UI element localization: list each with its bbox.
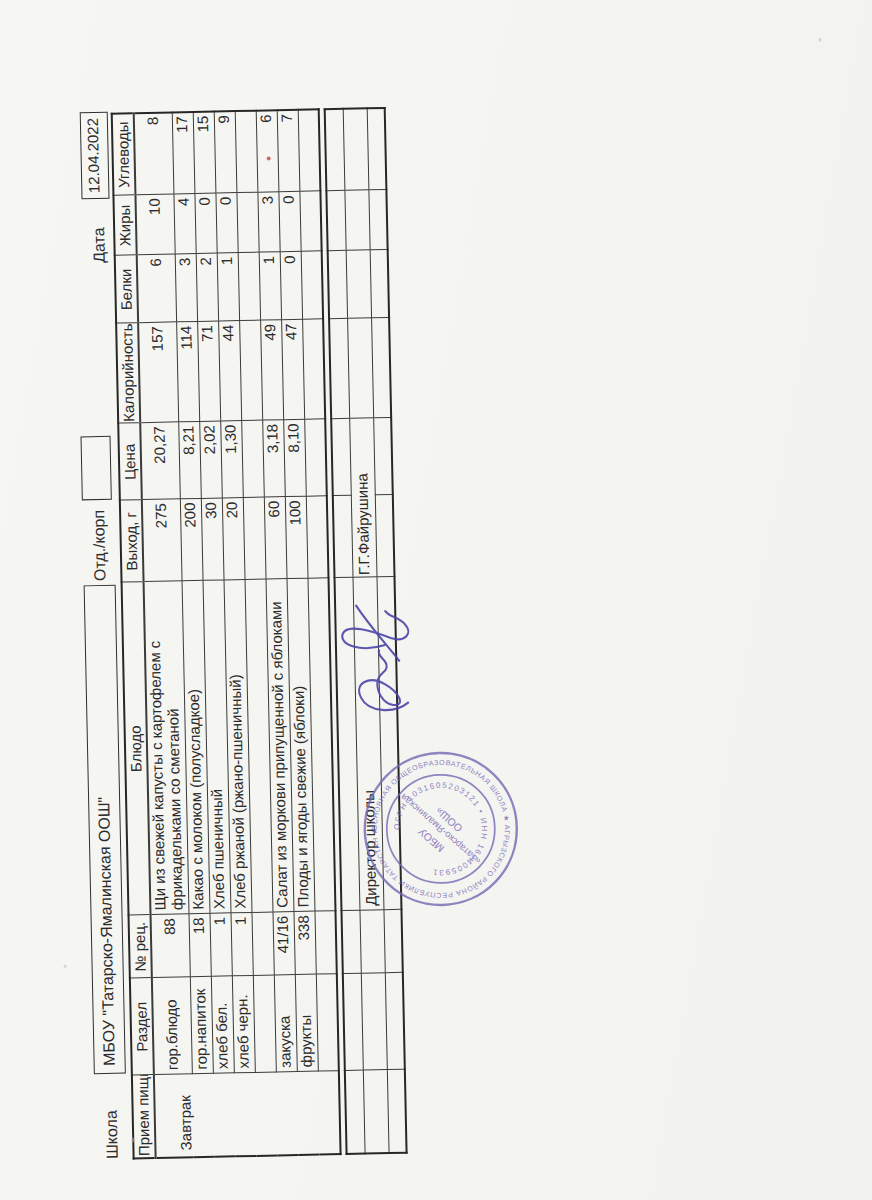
date-value: 12.04.2022 (81, 113, 107, 198)
red-ink-speck (267, 156, 271, 160)
cell-section: хлеб бел. (211, 976, 234, 1073)
cell-protein: 2 (196, 254, 218, 322)
signature-stroke (342, 611, 409, 649)
cell-protein: 1 (217, 253, 239, 321)
cell-carbs: 7 (277, 110, 300, 192)
signature-stroke (356, 605, 399, 662)
col-header-fat: Жиры (113, 195, 136, 255)
cell-rec: 1 (231, 913, 253, 976)
director-name: Г.Г.Файрушина (349, 418, 376, 577)
dept-value-box (80, 436, 111, 501)
cell-protein: 0 (280, 252, 302, 320)
cell-fat: 0 (278, 192, 300, 252)
cell-output: 275 (142, 499, 182, 582)
document-content: Школа МБОУ "Татарско-Ямалинская ООШ" Отд… (0, 0, 872, 1200)
cell-price: 8,10 (283, 420, 306, 497)
cell-carbs: 6 (256, 110, 279, 192)
cell-carbs: 17 (172, 112, 195, 194)
col-header-output: Выход, г (120, 500, 144, 582)
cell-output: 60 (264, 497, 287, 579)
col-header-price: Цена (118, 423, 142, 500)
round-stamp: ОСНОВНАЯ ОБЩЕОБРАЗОВАТЕЛЬНАЯ ШКОЛА ★ АГР… (356, 744, 525, 913)
col-header-protein: Белки (115, 255, 138, 323)
cell-price: 1,30 (220, 421, 243, 498)
cell-price: 3,18 (262, 420, 285, 497)
cell-rec: 88 (151, 914, 190, 978)
scan-speck (64, 965, 67, 968)
date-label: Дата (90, 227, 109, 263)
cell-fat: 0 (194, 194, 216, 254)
cell-carbs: 8 (134, 112, 174, 195)
cell-calories: 49 (260, 320, 283, 420)
col-header-rec: № рец. (129, 915, 152, 978)
school-label: Школа (103, 1110, 122, 1159)
dept-label: Отд./корп (90, 510, 109, 581)
cell-fat: 3 (257, 192, 279, 252)
cell-price: 8,21 (178, 422, 201, 499)
cell-meal: Завтрак (154, 1071, 341, 1158)
signature-stroke (358, 650, 408, 711)
cell-rec: 41/16 (273, 912, 295, 975)
school-name: МБОУ "Татарско-Ямалинская ООШ" (85, 586, 124, 1074)
col-header-carbs: Углеводы (112, 113, 136, 195)
cell-output: 200 (180, 499, 203, 581)
col-header-calories: Калорийность (116, 323, 140, 423)
scan-speck (131, 1137, 134, 1142)
school-name-box: МБОУ "Татарско-Ямалинская ООШ" (84, 585, 126, 1075)
cell-output: 30 (201, 498, 224, 580)
cell-calories: 71 (197, 322, 220, 422)
cell-protein: 1 (259, 252, 281, 320)
scanned-page: Школа МБОУ "Татарско-Ямалинская ООШ" Отд… (0, 0, 872, 1200)
cell-fat: 10 (135, 194, 174, 255)
col-header-meal: Прием пищи (132, 1075, 156, 1158)
cell-section: гор.напиток (190, 977, 213, 1074)
cell-carbs: 9 (214, 111, 237, 193)
cell-calories: 44 (218, 321, 241, 421)
cell-calories: 47 (281, 320, 304, 420)
cell-section: фрукты (295, 975, 318, 1072)
cell-section: гор.блюдо (152, 977, 192, 1075)
cell-fat: 4 (173, 194, 195, 254)
cell-protein: 3 (175, 254, 197, 322)
date-box: 12.04.2022 (80, 112, 110, 200)
cell-fat: 0 (215, 193, 237, 253)
cell-calories: 114 (176, 322, 199, 422)
cell-protein: 6 (137, 254, 176, 323)
cell-rec: 18 (189, 914, 211, 977)
cell-price: 20,27 (140, 422, 180, 500)
cell-section: закуска (274, 975, 297, 1072)
col-header-section: Раздел (130, 978, 154, 1075)
menu-table: Прием пищи Раздел № рец. Блюдо Выход, г … (111, 108, 342, 1159)
cell-output: 20 (222, 498, 245, 580)
cell-rec: 1 (210, 913, 232, 976)
cell-calories: 157 (138, 322, 178, 423)
cell-output: 100 (285, 497, 308, 579)
handwritten-signature (330, 596, 436, 718)
cell-rec: 338 (294, 912, 316, 975)
cell-section: хлеб черн. (232, 976, 255, 1073)
cell-carbs: 15 (193, 112, 216, 194)
cell-price: 2,02 (199, 421, 222, 498)
scan-speck (818, 38, 821, 42)
